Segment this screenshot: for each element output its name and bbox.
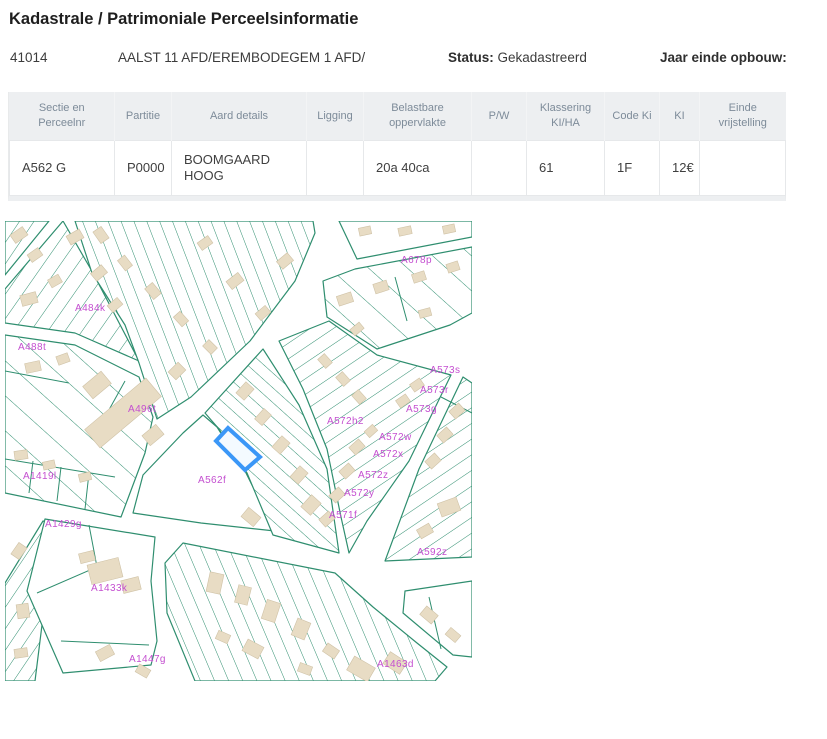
parcel-info-row: 41014 AALST 11 AFD/EREMBODEGEM 1 AFD/ St… [0, 50, 827, 70]
table-cell: A562 G [10, 141, 115, 196]
municipality-code: 41014 [10, 50, 48, 65]
column-header: Klassering KI/HA [527, 92, 605, 141]
map-container: A678pA484kA488tA496tA573sA573rA573gA572h… [5, 221, 472, 681]
parcel-label[interactable]: A571f [329, 510, 357, 521]
table-header-row: Sectie en PerceelnrPartitieAard detailsL… [10, 92, 786, 141]
table-cell: P0000 [115, 141, 172, 196]
table-cell [307, 141, 364, 196]
parcel-table-container: Sectie en PerceelnrPartitieAard detailsL… [8, 92, 786, 201]
parcel-label[interactable]: A1463d [377, 659, 414, 670]
column-header: Sectie en Perceelnr [10, 92, 115, 141]
parcel-label[interactable]: A488t [18, 342, 46, 353]
column-header: Ligging [307, 92, 364, 141]
column-header: Partitie [115, 92, 172, 141]
parcel-label[interactable]: A572y [344, 488, 374, 499]
column-header: Code Ki [605, 92, 660, 141]
column-header: KI [660, 92, 700, 141]
parcel-label[interactable]: A1429g [45, 519, 82, 530]
cadastral-parcel-page: Kadastrale / Patrimoniale Perceelsinform… [0, 0, 827, 739]
parcel-label[interactable]: A592z [417, 547, 447, 558]
table-body: A562 GP0000BOOMGAARD HOOG20a 40ca611F12€ [10, 141, 786, 196]
parcel-label[interactable]: A572x [373, 449, 403, 460]
division-name: AALST 11 AFD/EREMBODEGEM 1 AFD/ [118, 50, 365, 65]
status-field: Status: Gekadastreerd [448, 50, 587, 65]
parcel-table: Sectie en PerceelnrPartitieAard detailsL… [9, 92, 786, 196]
parcel-label[interactable]: A573r [420, 385, 449, 396]
status-label: Status: [448, 50, 494, 65]
parcel-label[interactable]: A572w [379, 432, 412, 443]
cadastral-map[interactable]: A678pA484kA488tA496tA573sA573rA573gA572h… [5, 221, 472, 681]
parcel-label[interactable]: A572h2 [327, 416, 364, 427]
page-title: Kadastrale / Patrimoniale Perceelsinform… [9, 10, 358, 29]
parcel-label[interactable]: A496t [128, 404, 156, 415]
column-header: Belastbare oppervlakte [364, 92, 472, 141]
table-row[interactable]: A562 GP0000BOOMGAARD HOOG20a 40ca611F12€ [10, 141, 786, 196]
parcel-label[interactable]: A1419l [23, 471, 57, 482]
parcel-label[interactable]: A1447g [129, 654, 166, 665]
parcel-label[interactable]: A573g [406, 404, 437, 415]
table-cell: BOOMGAARD HOOG [172, 141, 307, 196]
table-cell: 12€ [660, 141, 700, 196]
year-end-construction-label: Jaar einde opbouw: [660, 50, 787, 65]
parcel-label[interactable]: A484k [75, 303, 106, 314]
parcel-label[interactable]: A1433k [91, 583, 128, 594]
table-cell: 61 [527, 141, 605, 196]
column-header: Aard details [172, 92, 307, 141]
parcel-label[interactable]: A678p [401, 255, 432, 266]
parcel-label[interactable]: A572z [358, 470, 388, 481]
status-value: Gekadastreerd [498, 50, 587, 65]
table-cell [472, 141, 527, 196]
parcel-label[interactable]: A562f [198, 475, 226, 486]
parcel-label[interactable]: A573s [430, 365, 460, 376]
column-header: P/W [472, 92, 527, 141]
table-cell: 20a 40ca [364, 141, 472, 196]
table-cell: 1F [605, 141, 660, 196]
column-header: Einde vrijstelling [700, 92, 786, 141]
table-cell [700, 141, 786, 196]
